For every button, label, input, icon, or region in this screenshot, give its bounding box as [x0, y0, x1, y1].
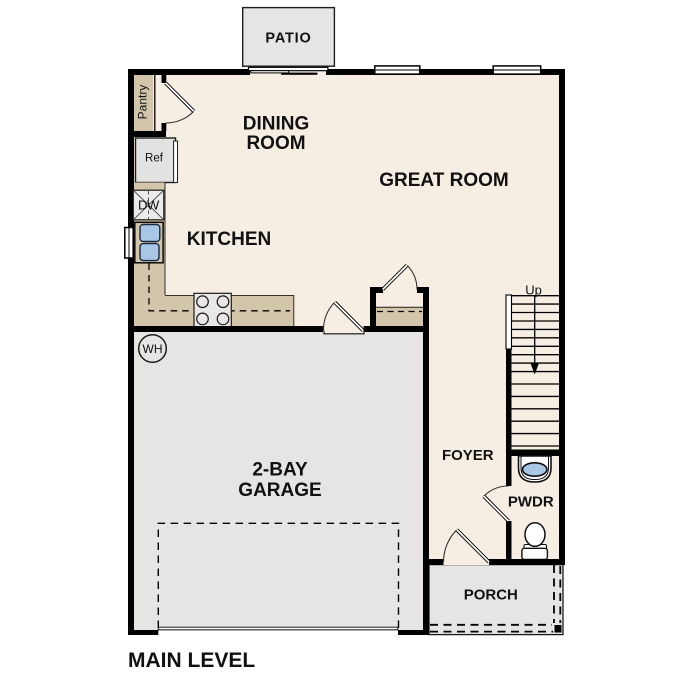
- svg-text:KITCHEN: KITCHEN: [187, 229, 271, 250]
- svg-text:MAIN LEVEL: MAIN LEVEL: [128, 649, 255, 672]
- svg-text:PORCH: PORCH: [464, 587, 518, 604]
- svg-text:2-BAY: 2-BAY: [252, 460, 308, 481]
- svg-text:Up: Up: [525, 283, 542, 298]
- svg-text:DW: DW: [138, 198, 160, 213]
- svg-text:Pantry: Pantry: [136, 85, 150, 120]
- svg-text:Ref: Ref: [145, 153, 164, 165]
- svg-text:PATIO: PATIO: [265, 31, 311, 47]
- svg-text:WH: WH: [143, 342, 163, 356]
- svg-text:GARAGE: GARAGE: [238, 480, 321, 501]
- svg-text:ROOM: ROOM: [246, 133, 305, 154]
- svg-text:FOYER: FOYER: [442, 447, 494, 464]
- svg-text:DINING: DINING: [243, 113, 310, 134]
- svg-text:PWDR: PWDR: [508, 494, 554, 511]
- svg-text:GREAT ROOM: GREAT ROOM: [379, 170, 508, 191]
